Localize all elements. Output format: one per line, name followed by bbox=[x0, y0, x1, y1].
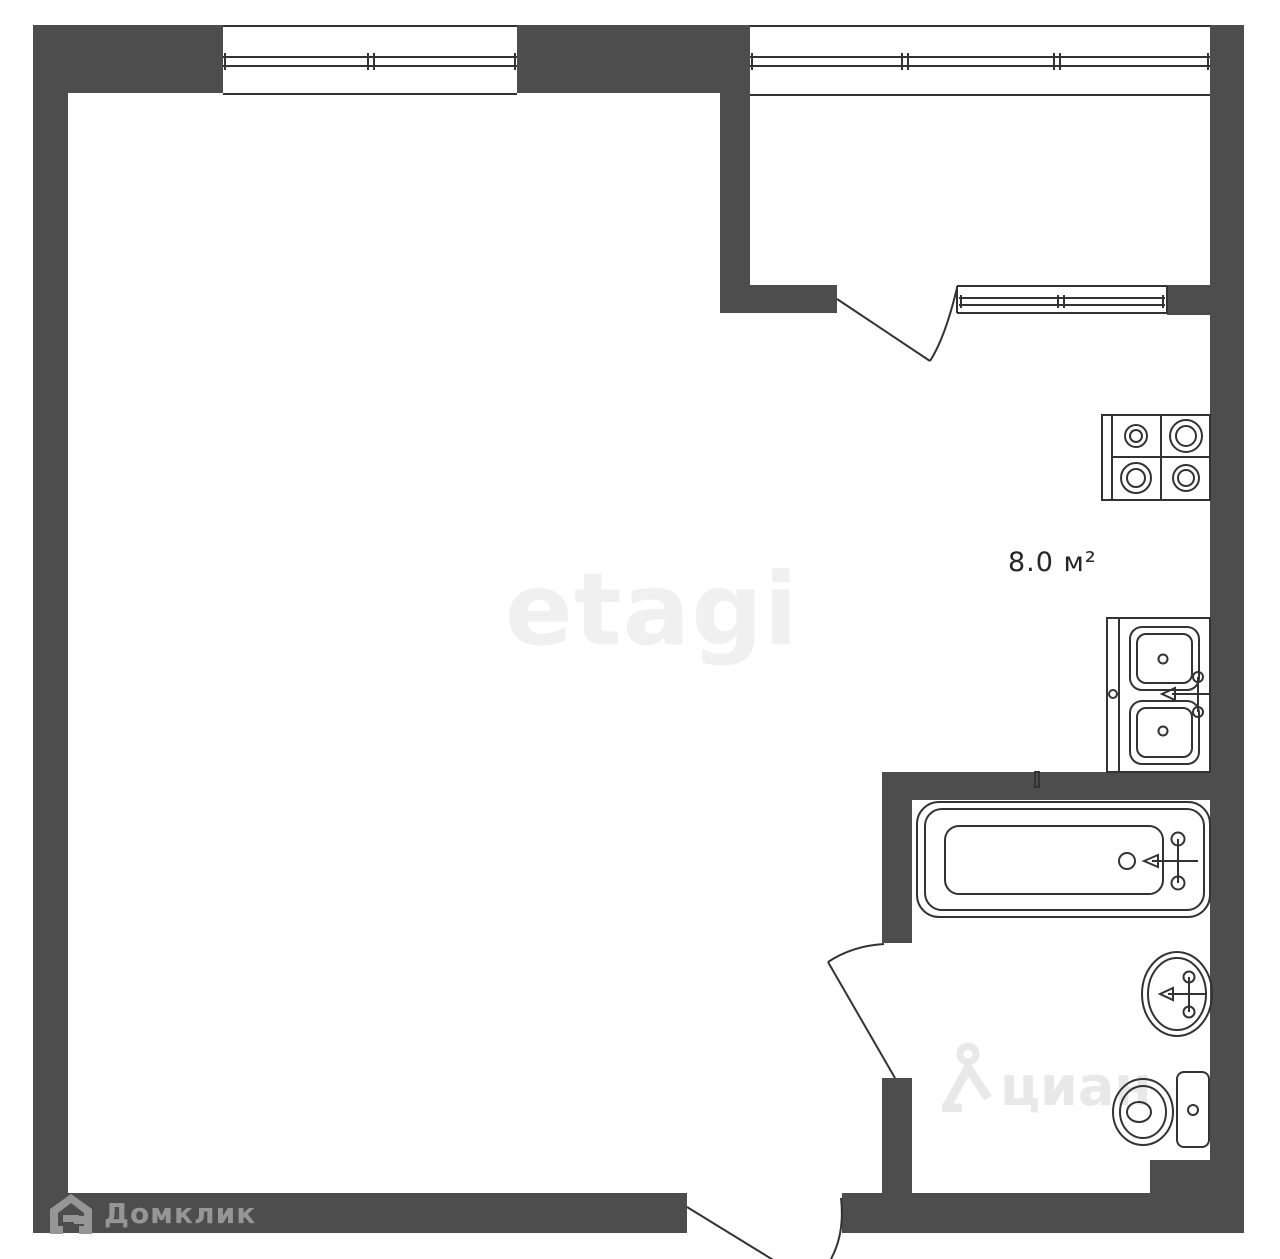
window-living-room bbox=[223, 26, 517, 94]
balcony-door bbox=[837, 288, 957, 361]
bathroom-door bbox=[828, 944, 895, 1078]
bathtub-icon bbox=[917, 802, 1210, 917]
wall-joint-tick bbox=[1035, 772, 1039, 787]
kitchen-area-label: 8.0 м² bbox=[1008, 547, 1097, 578]
floor-plan: циан bbox=[0, 0, 1280, 1259]
window-kitchen bbox=[957, 286, 1167, 313]
kitchen-sink-icon bbox=[1107, 618, 1210, 772]
entry-door bbox=[687, 1198, 842, 1259]
stove-icon bbox=[1102, 415, 1210, 500]
domclick-house-icon bbox=[48, 1192, 94, 1234]
etagi-watermark: etagi bbox=[505, 560, 799, 660]
domclick-watermark-text: Домклик bbox=[104, 1197, 256, 1230]
domclick-watermark: Домклик bbox=[48, 1192, 256, 1234]
balcony-glazing bbox=[750, 26, 1210, 95]
toilet-icon bbox=[1113, 1072, 1209, 1147]
washbasin-icon bbox=[1142, 952, 1212, 1036]
